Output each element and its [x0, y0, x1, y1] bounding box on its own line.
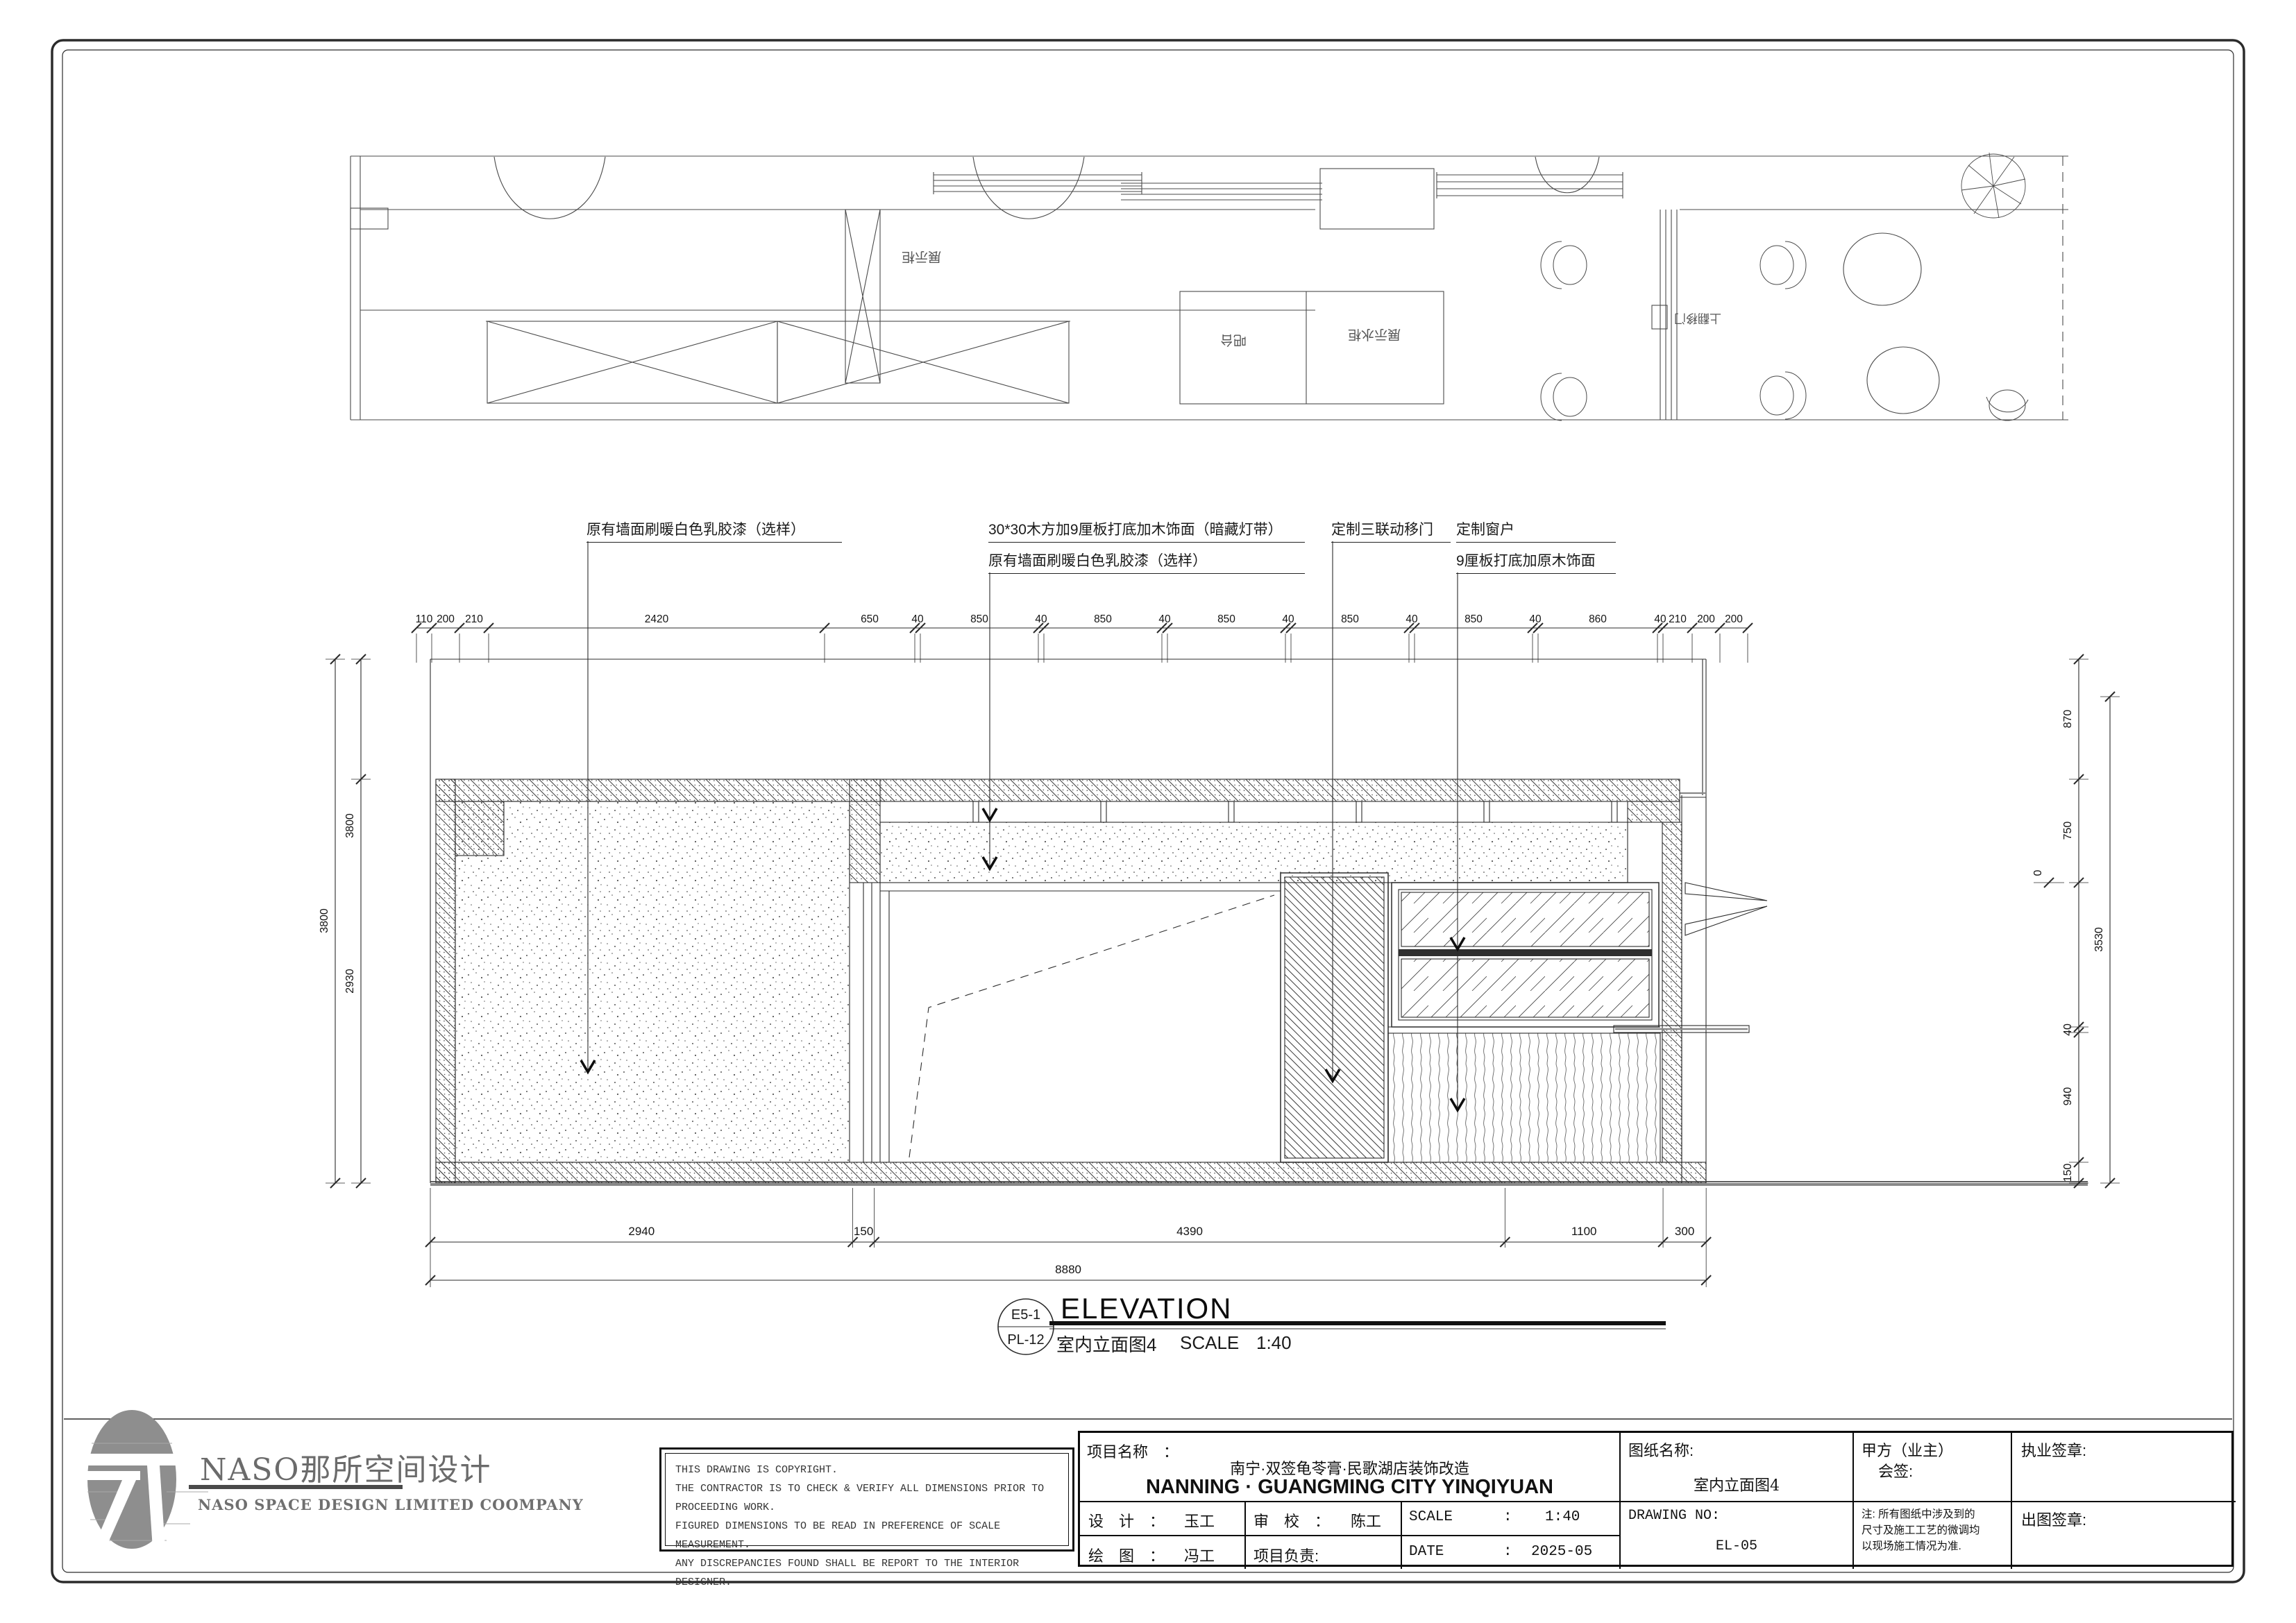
logo-text-cn: NASO那所空间设计 — [200, 1445, 492, 1489]
dim-label: 40 — [1158, 613, 1171, 625]
dim-label: 0 — [2032, 869, 2044, 876]
ceiling-battens — [973, 801, 1617, 822]
dim-label: 750 — [2062, 822, 2074, 840]
annotation-custom-window: 定制窗户 — [1456, 518, 1616, 543]
dim-label: 40 — [1529, 613, 1542, 625]
designer-label: 设 计 ： — [1088, 1509, 1165, 1531]
client-label: 甲方（业主） — [1862, 1438, 1953, 1461]
date-label: DATE — [1409, 1544, 1444, 1560]
plan-label-flip-door: 上翻移门 — [1657, 311, 1721, 328]
dim-label: 850 — [1341, 613, 1359, 625]
dim-label: 3800 — [344, 813, 356, 838]
dim-label: 300 — [1675, 1225, 1694, 1238]
sliding-door-leaf — [1281, 873, 1388, 1162]
dim-label: 870 — [2062, 710, 2074, 729]
dim-label: 1100 — [1571, 1225, 1597, 1238]
designer-value: 玉工 — [1184, 1509, 1215, 1531]
drawing-canvas: 1102002102420650408504085040850408504085… — [0, 0, 2296, 1623]
drawing-no-label: DRAWING NO: — [1628, 1508, 1720, 1524]
door-opening — [863, 883, 1281, 1162]
plan-chairs — [1541, 241, 2028, 420]
window-opening-symbol — [1685, 883, 1767, 935]
drawing-sheet: { "plan": { "display_cabinet": "展示柜", "b… — [0, 0, 2296, 1623]
plan-label-bar: 吧台 — [1216, 332, 1247, 350]
dim-label: 40 — [1282, 613, 1294, 625]
scale-row-colon: : — [1503, 1509, 1512, 1525]
scale-row-label: SCALE — [1409, 1509, 1453, 1525]
scale-value: 1:40 — [1256, 1332, 1292, 1354]
dim-label: 650 — [861, 613, 879, 625]
dim-label: 2930 — [344, 969, 356, 994]
elevation-view — [430, 659, 2088, 1184]
dim-label: 40 — [1035, 613, 1047, 625]
dim-label: 210 — [465, 613, 483, 625]
titleblock-note: 注: 所有图纸中涉及到的 尺寸及施工工艺的微调均 以现场施工情况为准. — [1862, 1506, 2007, 1554]
sheet-name-label: 图纸名称: — [1628, 1438, 1694, 1461]
elevation-title-cn: 室内立面图4 — [1056, 1331, 1156, 1357]
logo-text-en: NASO SPACE DESIGN LIMITED COOMPANY — [198, 1496, 584, 1513]
issue-seal-label: 出图签章: — [2021, 1508, 2086, 1530]
dim-label: 2940 — [628, 1225, 655, 1238]
copyright-box: THIS DRAWING IS COPYRIGHT. THE CONTRACTO… — [659, 1447, 1074, 1552]
dim-label: 940 — [2062, 1087, 2074, 1106]
copyright-line: ANY DISCREPANCIES FOUND SHALL BE REPORT … — [675, 1554, 1058, 1592]
dim-label: 110 — [416, 613, 433, 625]
dim-label: 850 — [1464, 613, 1483, 625]
dim-label: 40 — [1406, 613, 1418, 625]
dim-label: 850 — [970, 613, 988, 625]
dim-label: 2420 — [645, 613, 669, 625]
copyright-line: THIS DRAWING IS COPYRIGHT. — [675, 1461, 1058, 1479]
drafter-value: 冯工 — [1184, 1544, 1215, 1566]
drafter-label: 绘 图 ： — [1088, 1544, 1165, 1566]
date-colon: : — [1503, 1544, 1512, 1560]
detail-ref-bottom: PL-12 — [1005, 1332, 1047, 1348]
dim-label: 850 — [1217, 613, 1235, 625]
dim-label: 200 — [1725, 613, 1743, 625]
dim-label: 3800 — [319, 908, 330, 933]
plan-plant — [1961, 153, 2025, 218]
wood-grain-panel — [1388, 1033, 1660, 1162]
dim-label: 150 — [2062, 1164, 2074, 1182]
checker-value: 陈工 — [1351, 1509, 1381, 1531]
dim-label: 210 — [1669, 613, 1687, 625]
client-countersign-label: 会签: — [1878, 1459, 1913, 1481]
dim-label: 3530 — [2093, 927, 2105, 952]
annotation-wall-paint-mid: 原有墙面刷暖白色乳胶漆（选样） — [988, 550, 1305, 574]
annotation-wood-batten: 30*30木方加9厘板打底加木饰面（暗藏灯带） — [988, 518, 1305, 543]
annotation-window-finish: 9厘板打底加原木饰面 — [1456, 550, 1616, 574]
checker-label: 审 校 ： — [1253, 1509, 1330, 1531]
dim-label: 40 — [1654, 613, 1666, 625]
dim-label: 200 — [437, 613, 455, 625]
dim-label: 860 — [1589, 613, 1607, 625]
project-lead-label: 项目负责: — [1253, 1544, 1319, 1566]
project-name-en: NANNING · GUANGMING CITY YINQIYUAN — [1080, 1476, 1619, 1499]
dim-label: 850 — [1094, 613, 1112, 625]
elevation-title: ELEVATION — [1061, 1292, 1233, 1325]
copyright-line: FIGURED DIMENSIONS TO BE READ IN PREFERE… — [675, 1517, 1058, 1554]
dim-label: 8880 — [1055, 1263, 1081, 1276]
dim-label: 40 — [2062, 1023, 2074, 1036]
dim-label: 200 — [1697, 613, 1715, 625]
drawing-no-value: EL-05 — [1621, 1538, 1852, 1554]
date-value: 2025-05 — [1531, 1544, 1592, 1560]
dim-label: 4390 — [1176, 1225, 1203, 1238]
detail-ref-top: E5-1 — [1005, 1307, 1047, 1323]
scale-label: SCALE — [1180, 1332, 1239, 1354]
plan-view — [351, 153, 2068, 420]
plan-label-display-cabinet: 展示柜 — [886, 248, 941, 267]
scale-row-value: 1:40 — [1545, 1509, 1580, 1525]
sheet-name-value: 室内立面图4 — [1621, 1473, 1852, 1495]
copyright-line: THE CONTRACTOR IS TO CHECK & VERIFY ALL … — [675, 1479, 1058, 1517]
plan-label-display-water-cabinet: 展示水柜 — [1331, 326, 1401, 345]
plan-window-panels — [934, 169, 1623, 229]
annotation-sliding-door: 定制三联动移门 — [1331, 518, 1451, 543]
dim-label: 40 — [911, 613, 924, 625]
annotation-wall-paint-left: 原有墙面刷暖白色乳胶漆（选样） — [586, 518, 842, 543]
title-block: 项目名称 ： 南宁·双签龟苓膏·民歌湖店装饰改造 NANNING · GUANG… — [1078, 1431, 2234, 1567]
license-seal-label: 执业签章: — [2021, 1438, 2086, 1461]
dim-label: 150 — [854, 1225, 873, 1238]
